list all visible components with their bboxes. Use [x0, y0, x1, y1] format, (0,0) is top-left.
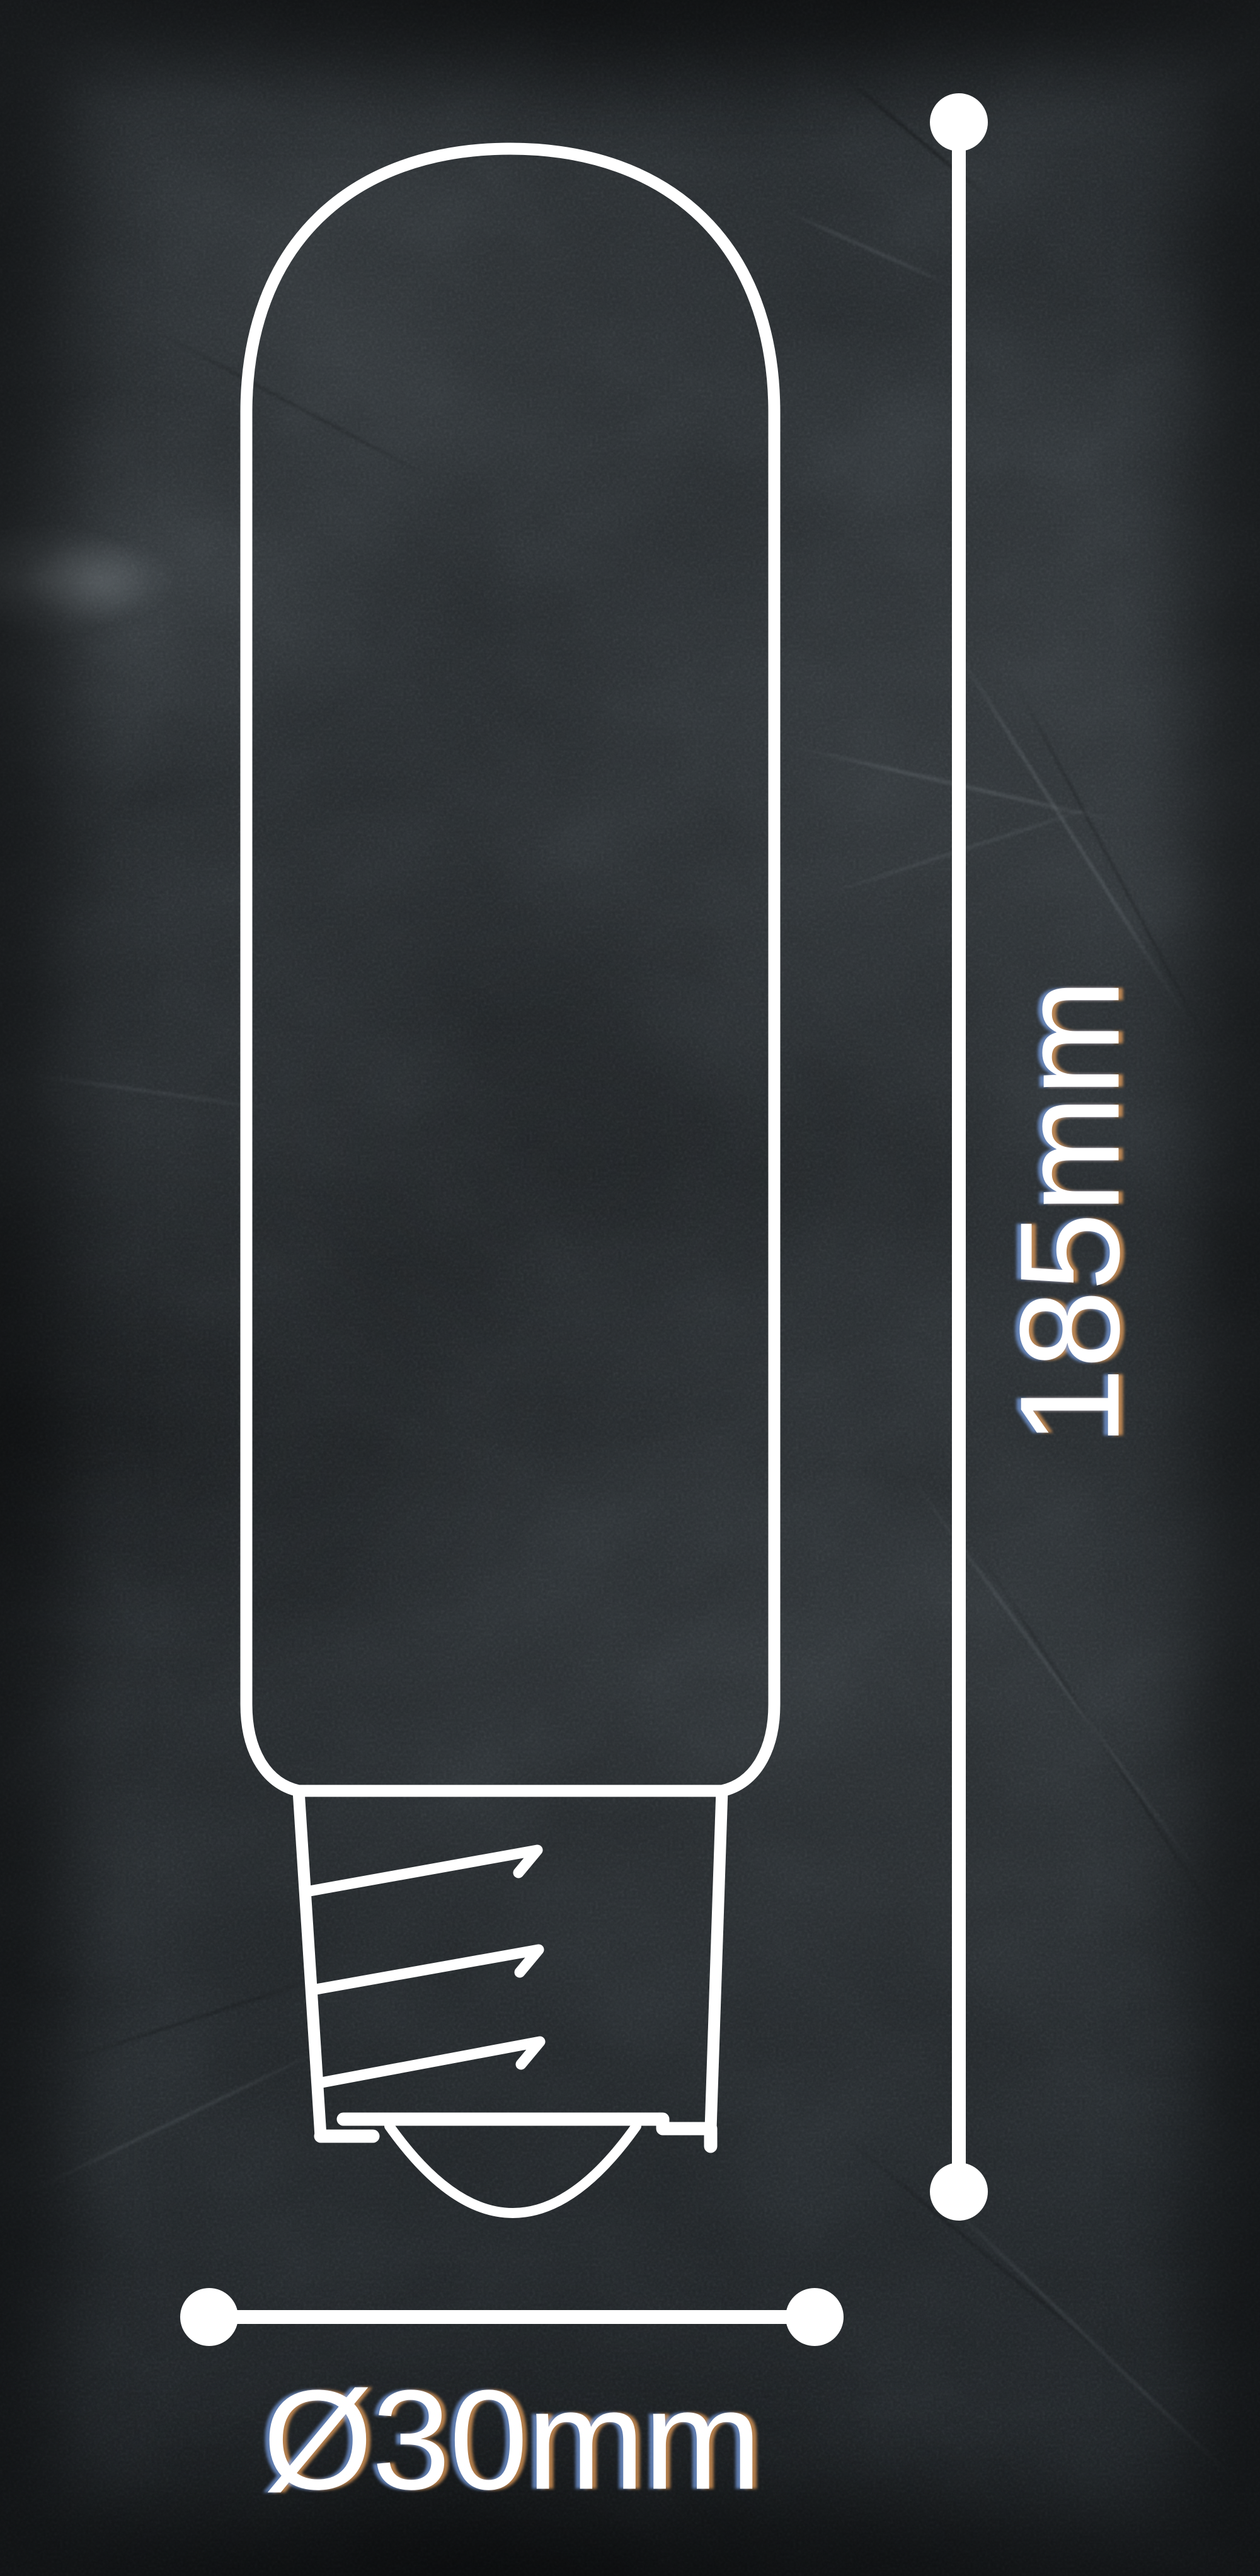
height-dimension-dot-top	[930, 93, 988, 151]
diameter-dimension-dot-right	[786, 2288, 844, 2346]
height-dimension-dot-bottom	[930, 2163, 988, 2221]
height-dimension	[930, 93, 988, 2221]
screw-base-bottom-rim	[321, 2119, 711, 2146]
screw-thread-line	[306, 1850, 537, 1892]
diameter-dimension	[180, 2288, 844, 2346]
screw-base-outline	[299, 1791, 722, 2136]
screw-thread-line	[312, 1950, 539, 1990]
stage: 185mm Ø30mm	[0, 0, 1260, 2576]
diameter-dimension-dot-left	[180, 2288, 238, 2346]
diameter-dimension-label: Ø30mm	[263, 2369, 760, 2511]
glass-tube-outline	[246, 149, 774, 1791]
base-contact-arc	[389, 2126, 636, 2213]
screw-thread-line	[318, 2042, 540, 2083]
height-dimension-label: 185mm	[999, 980, 1141, 1446]
